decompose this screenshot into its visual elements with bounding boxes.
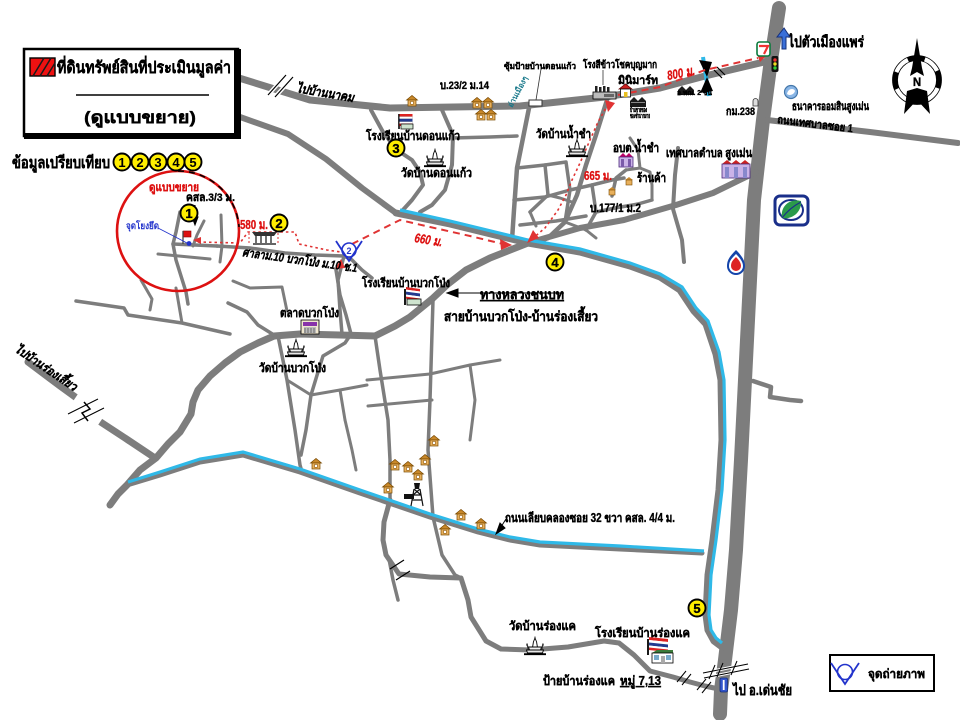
svg-text:ไป อ.เด่นชัย: ไป อ.เด่นชัย: [731, 681, 792, 698]
svg-text:โรงสีข้าวโชคบุญมาก: โรงสีข้าวโชคบุญมาก: [582, 58, 657, 71]
svg-text:ร้านค้า: ร้านค้า: [637, 171, 666, 185]
svg-text:ธนาคารออมสินสูงเม่น: ธนาคารออมสินสูงเม่น: [792, 100, 869, 114]
svg-text:3: 3: [392, 141, 399, 156]
svg-text:ซุ้มป้ายบ้านดอนแก้ว: ซุ้มป้ายบ้านดอนแก้ว: [504, 61, 576, 72]
svg-text:1: 1: [185, 206, 192, 221]
svg-text:5: 5: [189, 155, 196, 170]
svg-text:จุดโยงยึด: จุดโยงยึด: [126, 220, 159, 232]
svg-text:กม.238: กม.238: [726, 106, 755, 118]
svg-text:ทางหลวงชนบท: ทางหลวงชนบท: [480, 287, 564, 302]
svg-text:อบต.น้ำชำ: อบต.น้ำชำ: [613, 138, 659, 155]
svg-text:คสล.3/3 ม.: คสล.3/3 ม.: [186, 192, 235, 204]
svg-text:2: 2: [275, 216, 282, 231]
svg-text:สายบ้านบวกโป่ง-บ้านร่องเสี้ยว: สายบ้านบวกโป่ง-บ้านร่องเสี้ยว: [444, 306, 598, 324]
svg-text:วัดบ้านน้ำชำ: วัดบ้านน้ำชำ: [536, 124, 591, 141]
svg-text:665 ม.: 665 ม.: [584, 169, 612, 183]
svg-text:วัดบ้านบวกโป่ง: วัดบ้านบวกโป่ง: [259, 360, 326, 375]
svg-text:โรงเรียนบ้านบวกโป่ง: โรงเรียนบ้านบวกโป่ง: [361, 275, 450, 290]
svg-text:N: N: [913, 77, 921, 89]
svg-text:2: 2: [136, 155, 143, 170]
svg-text:ข้อมูลเปรียบเทียบ: ข้อมูลเปรียบเทียบ: [12, 153, 110, 174]
svg-text:(ดูแบบขยาย): (ดูแบบขยาย): [84, 109, 196, 129]
svg-text:โรงเรียนบ้านดอนแก้ว: โรงเรียนบ้านดอนแก้ว: [365, 128, 460, 143]
svg-text:ที่ดินทรัพย์สินที่ประเมินมูลค่: ที่ดินทรัพย์สินที่ประเมินมูลค่า: [57, 55, 231, 79]
svg-text:มินิมาร์ท: มินิมาร์ท: [618, 74, 658, 87]
svg-text:4: 4: [172, 155, 180, 170]
svg-text:จุดถ่ายภาพ: จุดถ่ายภาพ: [868, 667, 925, 682]
svg-text:เทศบาลตำบล สูงเม่น: เทศบาลตำบล สูงเม่น: [666, 146, 753, 161]
svg-text:3: 3: [154, 155, 161, 170]
svg-text:วัดบ้านร่องแค: วัดบ้านร่องแค: [509, 619, 576, 633]
svg-text:ไปตัวเมืองแพร่: ไปตัวเมืองแพร่: [786, 32, 864, 51]
svg-text:4: 4: [551, 255, 559, 270]
svg-text:1: 1: [118, 155, 125, 170]
svg-text:ถนนเลียบคลองซอย 32 ขวา คสล. 4/: ถนนเลียบคลองซอย 32 ขวา คสล. 4/4 ม.: [505, 511, 675, 525]
svg-text:ป้ายบ้านร่องแค: ป้ายบ้านร่องแค: [543, 674, 615, 688]
svg-text:2: 2: [346, 246, 351, 256]
svg-text:บ.23/2 ม.14: บ.23/2 ม.14: [440, 80, 490, 92]
svg-text:580 ม.: 580 ม.: [240, 217, 268, 232]
svg-text:ตลาดบวกโป่ง: ตลาดบวกโป่ง: [280, 305, 339, 320]
svg-text:5: 5: [693, 601, 700, 616]
svg-text:วัดบ้านดอนแก้ว: วัดบ้านดอนแก้ว: [401, 166, 472, 180]
svg-text:ของชำมากมาย: ของชำมากมาย: [630, 112, 650, 120]
svg-text:โรงเรียนบ้านร่องแค: โรงเรียนบ้านร่องแค: [594, 625, 690, 640]
svg-text:บ.177/1 ม.2: บ.177/1 ม.2: [590, 201, 641, 215]
svg-text:หมู่ 7,13: หมู่ 7,13: [620, 674, 661, 689]
